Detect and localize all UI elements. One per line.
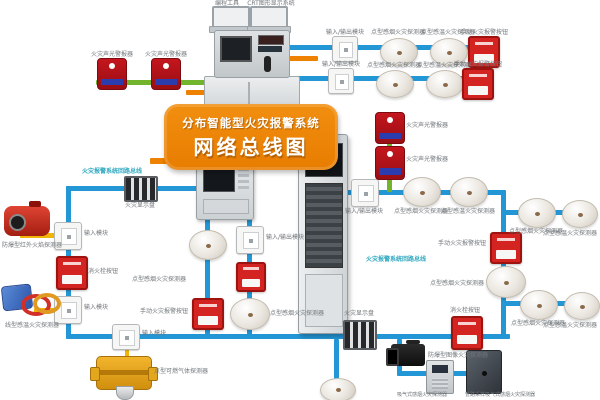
part [67,309,71,313]
part [220,36,252,62]
device-label: 点型感温火灾探测器 [540,230,600,237]
part [469,74,487,77]
device-label: 线型感温火灾探测器 [0,322,64,329]
device-label: 点型感烟火灾探测器 [270,310,330,317]
part [537,304,542,308]
banner-line1: 分布智能型火灾报警系统 [182,115,320,131]
io-module [351,179,379,207]
manual-call-point [490,232,522,264]
title-banner: 分布智能型火灾报警系统 网络总线图 [164,104,338,170]
device-label: 火灾声光警报器 [88,51,136,58]
device-label: 点型感烟火灾探测器 [126,276,186,283]
part [406,340,420,344]
linear-heat-detector-cable [2,284,52,316]
part [475,42,493,45]
smoke-detector [520,290,558,320]
part [387,117,393,123]
smoke-detector [320,378,356,400]
part [578,213,583,217]
part [447,51,452,55]
part [258,35,284,45]
part [264,56,271,72]
smoke-detector [450,177,488,207]
fire-display-panel [343,320,377,350]
smoke-detector [376,70,414,98]
device-label: 点型感烟火灾探测器 [424,280,484,287]
sound-light-alarm [97,58,127,90]
io-module [328,68,354,94]
laptop [212,6,250,30]
device-label: 点型可燃气体探测器 [154,368,214,375]
part [9,214,26,231]
part [457,335,476,344]
sound-light-alarm [151,58,181,90]
part [420,191,425,195]
part [379,133,401,139]
aspirating-smoke-detector [426,360,454,394]
device-label: 火灾报警系统回路总线 [82,168,166,175]
fire-display-panel [124,176,158,202]
smoke-detector [189,230,227,260]
part [109,63,115,69]
part [305,183,343,268]
smoke-detector [230,298,270,330]
device-label: 手动火灾报警按钮 [450,61,506,68]
banner-line2: 网络总线图 [194,131,309,160]
part [364,192,368,196]
part [258,46,282,52]
part [305,274,343,327]
device-label: 输入/输出模块 [337,208,391,215]
manual-call-point [192,298,224,330]
part [29,201,41,207]
smoke-detector [518,198,556,228]
part [242,279,260,287]
manual-call-point [462,68,494,100]
device-label: 手动火灾报警按钮 [428,240,486,247]
part [67,235,71,239]
smoke-detector [564,292,600,320]
part [458,322,476,325]
part [101,79,123,85]
device-label: 火灾显示盘 [337,310,381,317]
image-fire-detector [391,344,425,366]
device-label: 输入/输出模块 [266,234,320,241]
device-label: 输入模块 [84,304,116,311]
part [199,304,217,307]
part [496,250,515,258]
part [504,281,509,285]
part [203,199,250,214]
part [344,48,348,52]
smoke-detector [486,266,526,298]
part [535,212,540,216]
device-label: 点型感温火灾探测器 [540,322,600,329]
part [90,367,100,382]
device-label: 消火栓按钮 [443,307,487,314]
io-module [236,226,264,254]
part [97,370,151,375]
device-label: 火灾报警系统回路总线 [366,256,450,263]
device-label: 消火栓按钮 [88,268,128,275]
sound-light-alarm [375,146,405,180]
part [243,267,260,270]
device-label: 输入模块 [84,230,116,237]
device-label: 点型感温火灾探测器 [433,208,503,215]
device-label: 火灾声光警报器 [406,156,454,163]
part [468,86,487,94]
part [443,83,448,87]
device-label: 火灾显示盘 [118,202,162,209]
bus-line [334,339,339,380]
part [379,168,401,174]
flame-detector [4,206,50,236]
part [497,238,515,241]
smoke-detector [562,200,598,228]
part [116,386,134,400]
part [33,293,61,314]
gas-detector [96,356,152,390]
manual-call-point [56,256,88,290]
part [432,365,449,373]
manual-call-point [236,262,266,292]
device-label: 火灾声光警报器 [406,122,454,129]
device-label: 手动火灾报警按钮 [132,308,188,315]
network-bus-diagram: 分布智能型火灾报警系统 网络总线图 编程工具CRT图形显示系统火灾声光警报器火灾… [0,0,600,400]
device-label: 输入模块 [142,330,174,337]
part [249,239,253,243]
part [386,348,399,365]
part [248,313,253,317]
device-label: 防爆型红外火焰探测器 [0,242,64,249]
device-label: 吸气式感烟火灾探测器 [392,392,452,398]
device-label: 管路采样吸气式感烟火灾探测器 [455,392,545,398]
part [125,336,129,340]
part [432,378,449,389]
part [340,80,344,84]
io-module [112,324,140,350]
manual-call-point [451,316,483,350]
part [467,191,472,195]
part [580,305,585,309]
part [198,316,217,324]
part [336,388,341,392]
device-label: 火灾声光警报器 [142,51,190,58]
part [155,79,177,85]
smoke-detector [426,70,464,98]
sound-light-alarm [375,112,405,144]
laptop [250,6,288,30]
part [62,275,81,284]
part [387,151,393,157]
smoke-detector [403,177,441,207]
part [397,51,402,55]
part [63,262,81,265]
io-module [332,36,358,62]
device-label: 手动火灾报警按钮 [456,29,512,36]
part [206,244,211,248]
part [163,63,169,69]
device-label: 防爆型图像火灾探测器 [428,352,500,359]
device-label: CRT图形显示系统 [242,0,300,7]
part [482,371,487,376]
part [393,83,398,87]
